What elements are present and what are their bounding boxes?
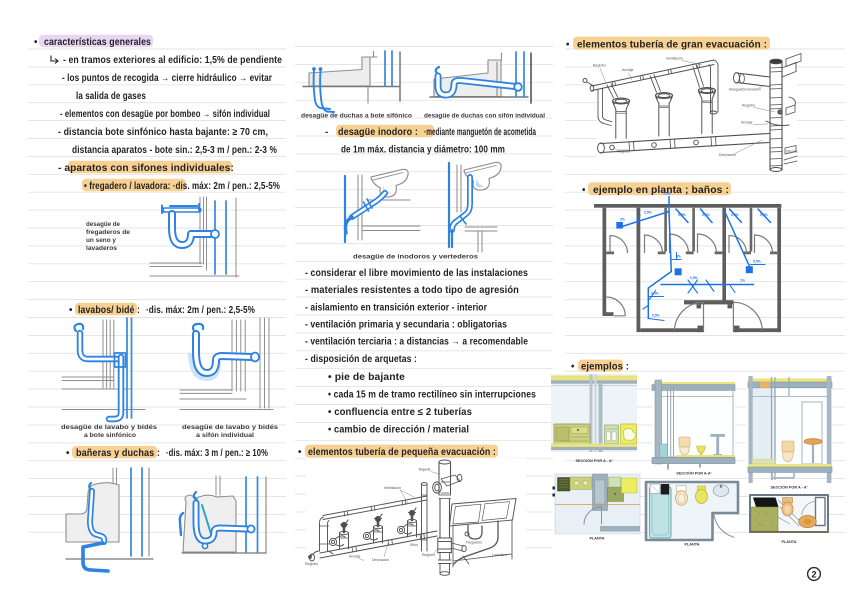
svg-text:características generales: características generales [44,37,151,48]
svg-text:Anclaje: Anclaje [622,68,634,72]
svg-text:Desviación: Desviación [719,153,736,157]
svg-text:lavabos/ bidé :: lavabos/ bidé : [78,305,140,316]
svg-text:Registro: Registro [593,64,606,68]
svg-text:0,5%: 0,5% [702,213,710,217]
svg-text:elementos tubería de gran evac: elementos tubería de gran evacuación : [577,40,767,51]
svg-text:de 1m máx. distancia y diámetr: de 1m máx. distancia y diámetro: 100 mm [341,145,505,156]
svg-text:•: • [582,185,586,196]
svg-text:SECCIÓN POR A - A′: SECCIÓN POR A - A′ [771,485,808,490]
svg-text:desagüe de inodoros y verteder: desagüe de inodoros y vertederos [353,254,479,261]
svg-text:- ventilación terciaria : a di: - ventilación terciaria : a distancias →… [305,337,528,348]
svg-text:•: • [66,448,70,459]
svg-text:Ventilación: Ventilación [384,486,401,490]
svg-text:- elementos con desagüe por bo: - elementos con desagüe por bombeo → sif… [60,109,270,120]
svg-text:desagüe inodoro :: desagüe inodoro : [338,127,418,138]
svg-text:1%: 1% [740,279,745,283]
svg-text:2,5%: 2,5% [644,211,652,215]
svg-text:• confluencia entre ≤ 2 tuberí: • confluencia entre ≤ 2 tuberías [328,407,472,418]
svg-text:Anclaje: Anclaje [741,121,753,125]
svg-text:0,5%: 0,5% [690,276,698,280]
svg-text:PLANTA: PLANTA [589,537,604,541]
svg-text:- en tramos exteriores al edif: - en tramos exteriores al edificio: 1,5%… [63,55,282,66]
svg-text:- distancia bote sinfónico has: - distancia bote sinfónico hasta bajante… [58,127,268,138]
svg-text:•: • [566,40,570,51]
svg-text:1,5%: 1,5% [663,192,671,196]
svg-text:un seno y: un seno y [86,237,116,244]
svg-text:• cambio de dirección / materi: • cambio de dirección / material [328,425,469,436]
svg-text:Lavadero: Lavadero [492,553,507,557]
svg-text:- materiales resistentes a tod: - materiales resistentes a todo tipo de … [305,285,519,296]
svg-text:5%: 5% [676,255,681,259]
svg-text:PLANTA: PLANTA [684,543,699,547]
svg-text:desagüe de duchas con sifón in: desagüe de duchas con sifón individual [424,113,545,120]
svg-text:desagüe de lavabo y bidés: desagüe de lavabo y bidés [182,424,279,431]
svg-text:Ventilación: Ventilación [666,57,683,61]
svg-text:PLANTA: PLANTA [781,540,796,544]
svg-text:2: 2 [811,570,816,580]
svg-text:Bajante: Bajante [419,468,431,472]
svg-text:distancia aparatos - bote sin.: distancia aparatos - bote sin.: 2,5-3 m … [72,145,277,156]
svg-text:desagüe de: desagüe de [86,221,120,228]
svg-text:fregaderos de: fregaderos de [86,229,130,236]
svg-text:• pie de bajante: • pie de bajante [328,372,405,383]
svg-text:·mediante manguetón de acometi: ·mediante manguetón de acometida [424,127,536,138]
svg-text:0,5%: 0,5% [651,292,659,296]
svg-text:•: • [69,305,73,316]
svg-text:0,5%: 0,5% [753,260,761,264]
svg-text:• cada 15 m de tramo rectilíne: • cada 15 m de tramo rectilíneo sin inte… [328,390,536,401]
svg-text:desagüe de duchas a bote sifón: desagüe de duchas a bote sifónico [301,113,412,120]
svg-text:a sifón individual: a sifón individual [196,432,254,439]
svg-text:Desviación: Desviación [372,558,389,562]
svg-text:0,5%: 0,5% [652,314,660,318]
svg-text:•: • [298,447,302,458]
svg-text:Registro: Registro [742,104,755,108]
svg-text:- ventilación primaria y secun: - ventilación primaria y secundaria : ob… [305,320,507,331]
svg-text:•: • [571,362,575,373]
svg-text:- considerar el libre movimien: - considerar el libre movimiento de las … [305,268,528,279]
svg-text:- aparatos con sifones individ: - aparatos con sifones individuales: [58,163,234,174]
svg-text:SECCIÓN POR A-A′: SECCIÓN POR A-A′ [676,471,711,476]
svg-text:0,5%: 0,5% [760,213,768,217]
svg-text:-: - [325,127,328,138]
svg-text:la salida de gases: la salida de gases [76,91,146,102]
svg-text:Manguetón lavadero: Manguetón lavadero [729,88,761,92]
svg-text:·dis. máx: 2m / pen.: 2,5-5%: ·dis. máx: 2m / pen.: 2,5-5% [146,305,255,316]
svg-text:elementos tubería de pequeña e: elementos tubería de pequeña evacuación … [308,447,496,458]
svg-text:•: • [34,37,38,48]
svg-text:Anclaje: Anclaje [349,555,361,559]
svg-text:Sifón: Sifón [410,543,418,547]
svg-text:ejemplo en planta ; baños :: ejemplo en planta ; baños : [593,185,729,196]
svg-text:bañeras y duchas :: bañeras y duchas : [76,448,160,459]
svg-text:a bote sinfónico: a bote sinfónico [84,432,136,439]
svg-text:ejemplos :: ejemplos : [581,362,629,373]
svg-text:- disposición de arquetas :: - disposición de arquetas : [305,354,417,365]
svg-text:·dis. máx: 3 m / pen.: ≥ 10%: ·dis. máx: 3 m / pen.: ≥ 10% [166,448,268,459]
svg-text:lavaderos: lavaderos [86,245,117,252]
svg-text:Registro: Registro [305,562,318,566]
svg-text:Sifones: Sifones [786,150,798,154]
svg-text:• fregadero / lavadora: ·dis.: • fregadero / lavadora: ·dis. máx: 2m / … [84,181,280,192]
svg-text:2%: 2% [620,218,625,222]
svg-text:desagüe de lavabo y bidés: desagüe de lavabo y bidés [61,424,158,431]
svg-text:- los puntos de recogida → cie: - los puntos de recogida → cierre hidráu… [62,73,272,84]
svg-text:0,5%: 0,5% [678,213,686,217]
svg-text:Fregadero: Fregadero [466,541,482,545]
svg-text:0,5%: 0,5% [731,213,739,217]
svg-text:SECCIÓN POR A - A′: SECCIÓN POR A - A′ [576,458,613,463]
svg-text:- aislamiento en transición ex: - aislamiento en transición exterior - i… [305,303,487,314]
